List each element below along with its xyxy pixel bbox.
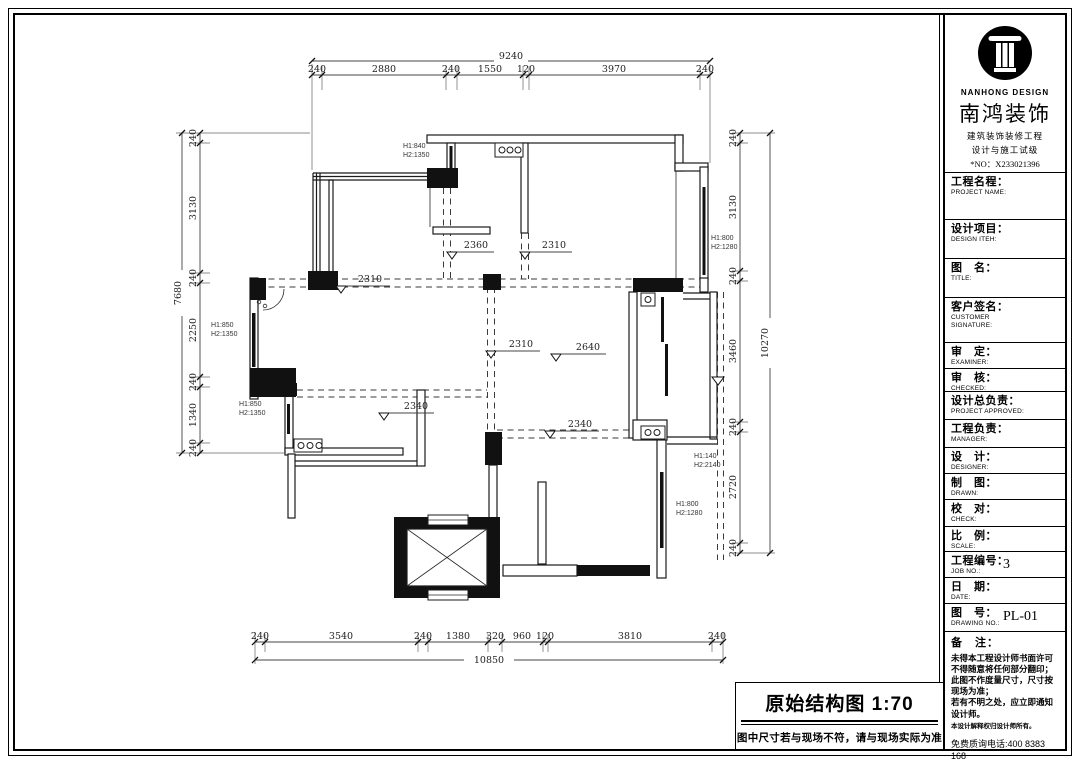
hlabel-5a: H1:140: [694, 453, 717, 460]
hlabel-1b: H2:1350: [403, 152, 430, 159]
field-drawn: 制 图： DRAWN:: [945, 474, 1065, 500]
caption-note: 图中尺寸若与现场不符，请与现场实际为准: [736, 730, 943, 745]
dim-top-seg-0: 240: [308, 64, 326, 75]
hlabel-3a: H1:850: [239, 401, 262, 408]
drawing-caption: 原始结构图 1:70 图中尺寸若与现场不符，请与现场实际为准: [735, 682, 943, 749]
field-customer-signature: 客户签名： CUSTOMER SIGNATURE:: [945, 298, 1065, 343]
field-check: 校 对： CHECK:: [945, 500, 1065, 527]
inner-dim-2310-mid: 2310: [509, 339, 533, 350]
title-block: NANHONG DESIGN 南鸿装饰 建筑装饰装修工程 设计与施工试级 *NO…: [943, 15, 1065, 749]
dim-left-seg-4: 240: [188, 373, 199, 391]
field-checked-cn: 审 核：: [951, 372, 1065, 385]
remark-fine-print: 本设计解释权归设计师所有。: [951, 723, 1060, 732]
field-scale: 比 例： SCALE:: [945, 527, 1065, 552]
elevator: [394, 515, 500, 600]
dim-left-seg-2: 240: [188, 269, 199, 287]
field-title: 图 名： TITLE:: [945, 259, 1065, 298]
hlabel-6b: H2:1280: [676, 510, 703, 517]
service-phone: 免费质询电话:400 8383 168: [951, 739, 1060, 763]
field-designer-en: DESIGNER:: [951, 464, 1029, 472]
caption-title: 原始结构图 1:70: [736, 689, 943, 716]
remark-label: 备 注：: [951, 636, 1060, 651]
field-date-en: DATE:: [951, 594, 1029, 602]
dim-top-seg-5: 3970: [602, 64, 626, 75]
caption-title-text: 原始结构图: [765, 694, 865, 715]
hlabel-4a: H1:800: [711, 235, 734, 242]
dim-bottom-seg-0: 240: [251, 631, 269, 642]
hlabel-1a: H1:840: [403, 143, 426, 150]
field-title-en: TITLE:: [951, 275, 1029, 283]
dim-right-total: 10270: [760, 328, 771, 358]
field-designer-cn: 设 计：: [951, 451, 1065, 464]
dim-bottom-seg-7: 3810: [618, 631, 642, 642]
inner-dim-2310-top: 2310: [542, 240, 566, 251]
interior-dims: 2360 2310 2310 2310 2640 2340 2340: [336, 240, 724, 438]
field-project-approved-cn: 设计总负责：: [951, 395, 1065, 408]
dim-bottom-seg-1: 3540: [329, 631, 353, 642]
inner-dim-2360: 2360: [464, 240, 488, 251]
dim-left-seg-6: 240: [188, 439, 199, 457]
caption-underline: [741, 720, 938, 725]
field-manager-en: MANAGER:: [951, 436, 1029, 444]
dim-right: 10270 240 3130 240 3460 240 2720 240: [728, 129, 775, 557]
drawing-sheet: 9240 240 2880 240 1550 120 3970 240 1085…: [0, 0, 1080, 764]
dim-bottom-seg-8: 240: [708, 631, 726, 642]
column-logo-icon: [978, 26, 1032, 80]
dim-right-seg-6: 240: [728, 539, 739, 557]
field-title-cn: 图 名：: [951, 262, 1065, 275]
field-date-cn: 日 期：: [951, 581, 1065, 594]
inner-dim-2340-mid: 2340: [568, 419, 592, 430]
dim-right-seg-3: 3460: [728, 339, 739, 363]
field-design-item-cn: 设计项目：: [951, 223, 1065, 236]
inner-dim-2340-kitchen: 2340: [404, 401, 428, 412]
field-manager: 工程负责： MANAGER:: [945, 420, 1065, 448]
walls: [250, 135, 717, 578]
field-scale-en: SCALE:: [951, 543, 1029, 551]
field-project-approved: 设计总负责： PROJECT APPROVED:: [945, 392, 1065, 420]
dim-bottom-seg-5: 960: [513, 631, 531, 642]
dim-right-seg-4: 240: [728, 418, 739, 436]
dim-top-seg-4: 120: [517, 64, 535, 75]
field-project-approved-en: PROJECT APPROVED:: [951, 408, 1029, 416]
brand-subtitle-2: 设计与施工试级: [945, 144, 1065, 156]
dim-right-seg-2: 240: [728, 267, 739, 285]
hlabel-4b: H2:1280: [711, 244, 738, 251]
hlabel-6a: H1:800: [676, 501, 699, 508]
remark-block: 备 注： 未得本工程设计师书面许可不得随意将任何部分翻印； 此图不作度量尺寸，尺…: [945, 632, 1065, 763]
field-scale-cn: 比 例：: [951, 530, 1065, 543]
field-drawing-no: 图 号： DRAWING NO.: PL-01: [945, 604, 1065, 632]
field-drawn-cn: 制 图：: [951, 477, 1065, 490]
dim-top-seg-1: 2880: [372, 64, 396, 75]
dim-bottom-seg-3: 1380: [446, 631, 470, 642]
dim-bottom-total: 10850: [474, 655, 504, 666]
dim-bottom-seg-2: 240: [414, 631, 432, 642]
field-drawn-en: DRAWN:: [951, 490, 1029, 498]
field-project-name-en: PROJECT NAME:: [951, 189, 1029, 197]
brand-license-no: *NO：X233021396: [945, 158, 1065, 170]
field-project-name-cn: 工程名程：: [951, 176, 1065, 189]
remark-line-3: 若有不明之处，应立即通知设计师。: [951, 697, 1060, 719]
field-date: 日 期： DATE:: [945, 578, 1065, 604]
field-check-cn: 校 对：: [951, 503, 1065, 516]
dim-top-total: 9240: [499, 51, 523, 62]
dim-top-seg-3: 1550: [478, 64, 502, 75]
field-design-item: 设计项目： DESIGN ITEH:: [945, 220, 1065, 259]
brand-name-en: NANHONG DESIGN: [945, 88, 1065, 97]
dim-right-seg-5: 2720: [728, 475, 739, 499]
field-designer: 设 计： DESIGNER:: [945, 448, 1065, 474]
inner-dim-2640: 2640: [576, 342, 600, 353]
hlabel-5b: H2:2140: [694, 462, 721, 469]
dim-bottom-seg-4: 320: [486, 631, 504, 642]
dim-left-seg-5: 1340: [188, 403, 199, 427]
pipe-symbols: [294, 143, 665, 452]
dim-left-seg-3: 2250: [188, 318, 199, 342]
hlabel-2b: H2:1350: [211, 331, 238, 338]
field-job-no: 工程编号： JOB NO.: 3: [945, 552, 1065, 578]
field-design-item-en: DESIGN ITEH:: [951, 236, 1029, 244]
dim-right-seg-0: 240: [728, 129, 739, 147]
field-manager-cn: 工程负责：: [951, 423, 1065, 436]
dim-left-seg-0: 240: [188, 129, 199, 147]
field-examiner-en: EXAMINER:: [951, 359, 1029, 367]
field-customer-signature-en: CUSTOMER SIGNATURE:: [951, 314, 1003, 330]
brand-subtitle-1: 建筑装饰装修工程: [945, 130, 1065, 142]
field-examiner-cn: 审 定：: [951, 346, 1065, 359]
job-no-value: 3: [1003, 557, 1010, 573]
brand-name-cn: 南鸿装饰: [945, 98, 1065, 128]
field-examiner: 审 定： EXAMINER:: [945, 343, 1065, 369]
field-checked: 审 核： CHECKED:: [945, 369, 1065, 392]
field-check-en: CHECK:: [951, 516, 1029, 524]
remark-line-2: 此图不作度量尺寸，尺寸按现场为准；: [951, 675, 1060, 697]
field-customer-signature-cn: 客户签名：: [951, 301, 1065, 314]
drawing-no-value: PL-01: [1003, 609, 1038, 625]
hlabel-3b: H2:1350: [239, 410, 266, 417]
dim-left-seg-1: 3130: [188, 196, 199, 220]
dim-left-total: 7680: [173, 281, 184, 305]
dim-top-seg-2: 240: [442, 64, 460, 75]
caption-scale: 1:70: [872, 694, 914, 715]
dim-top-seg-6: 240: [696, 64, 714, 75]
dim-bottom-seg-6: 120: [536, 631, 554, 642]
hlabel-2a: H1:850: [211, 322, 234, 329]
floor-plan: 9240 240 2880 240 1550 120 3970 240 1085…: [0, 0, 1080, 764]
dim-right-seg-1: 3130: [728, 195, 739, 219]
inner-dim-2310-living: 2310: [358, 274, 382, 285]
field-job-no-en: JOB NO.:: [951, 568, 1029, 576]
field-project-name: 工程名程： PROJECT NAME:: [945, 173, 1065, 220]
remark-line-1: 未得本工程设计师书面许可不得随意将任何部分翻印；: [951, 653, 1060, 675]
field-checked-en: CHECKED:: [951, 385, 1029, 392]
brand-area: NANHONG DESIGN 南鸿装饰 建筑装饰装修工程 设计与施工试级 *NO…: [945, 15, 1065, 173]
dim-bottom: 10850 240 3540 240 1380 320 960 120 3810…: [251, 631, 726, 666]
